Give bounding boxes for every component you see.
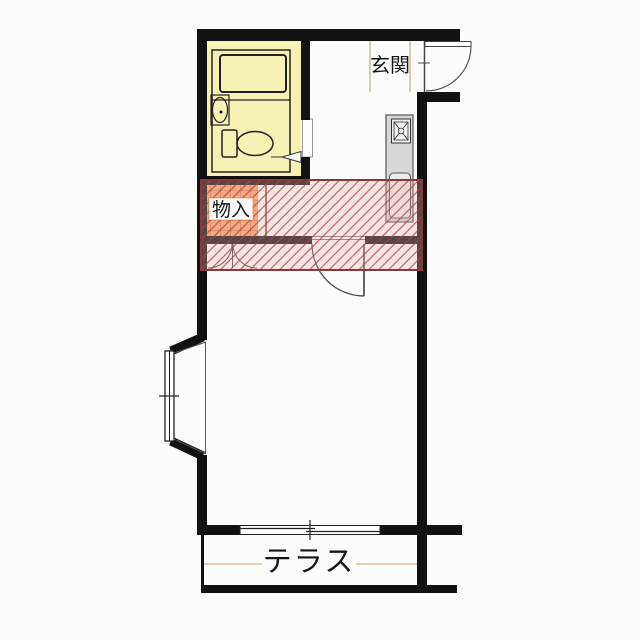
wall-terrace-left bbox=[201, 535, 204, 593]
bay-window bbox=[159, 337, 206, 456]
terrace: テラス bbox=[204, 546, 417, 578]
wall-terrace-bottom bbox=[201, 585, 457, 593]
bathroom bbox=[207, 41, 313, 176]
wall-bath-right-upper bbox=[301, 41, 310, 120]
storage-label: 物入 bbox=[209, 198, 253, 221]
wall-bottom-right bbox=[380, 525, 462, 535]
entrance-label-text: 玄関 bbox=[370, 54, 410, 77]
wall-entrance-stub bbox=[427, 92, 460, 102]
bay-wall-lower bbox=[171, 441, 203, 456]
wall-right bbox=[417, 92, 427, 593]
wall-left-lower bbox=[197, 455, 207, 535]
floorplan-canvas: 物入 テラス 玄関 bbox=[0, 0, 640, 640]
stove-icon bbox=[392, 119, 411, 143]
renovation-overlay bbox=[201, 180, 422, 270]
terrace-label-text: テラス bbox=[263, 546, 355, 578]
wall-bottom-left bbox=[197, 525, 240, 535]
floorplan-svg: 物入 テラス 玄関 bbox=[0, 0, 640, 640]
sliding-window bbox=[240, 520, 380, 540]
entrance-door-icon bbox=[425, 41, 472, 92]
overlay-hatch bbox=[201, 180, 422, 270]
storage-label-text: 物入 bbox=[212, 199, 250, 221]
wall-top bbox=[197, 29, 460, 41]
